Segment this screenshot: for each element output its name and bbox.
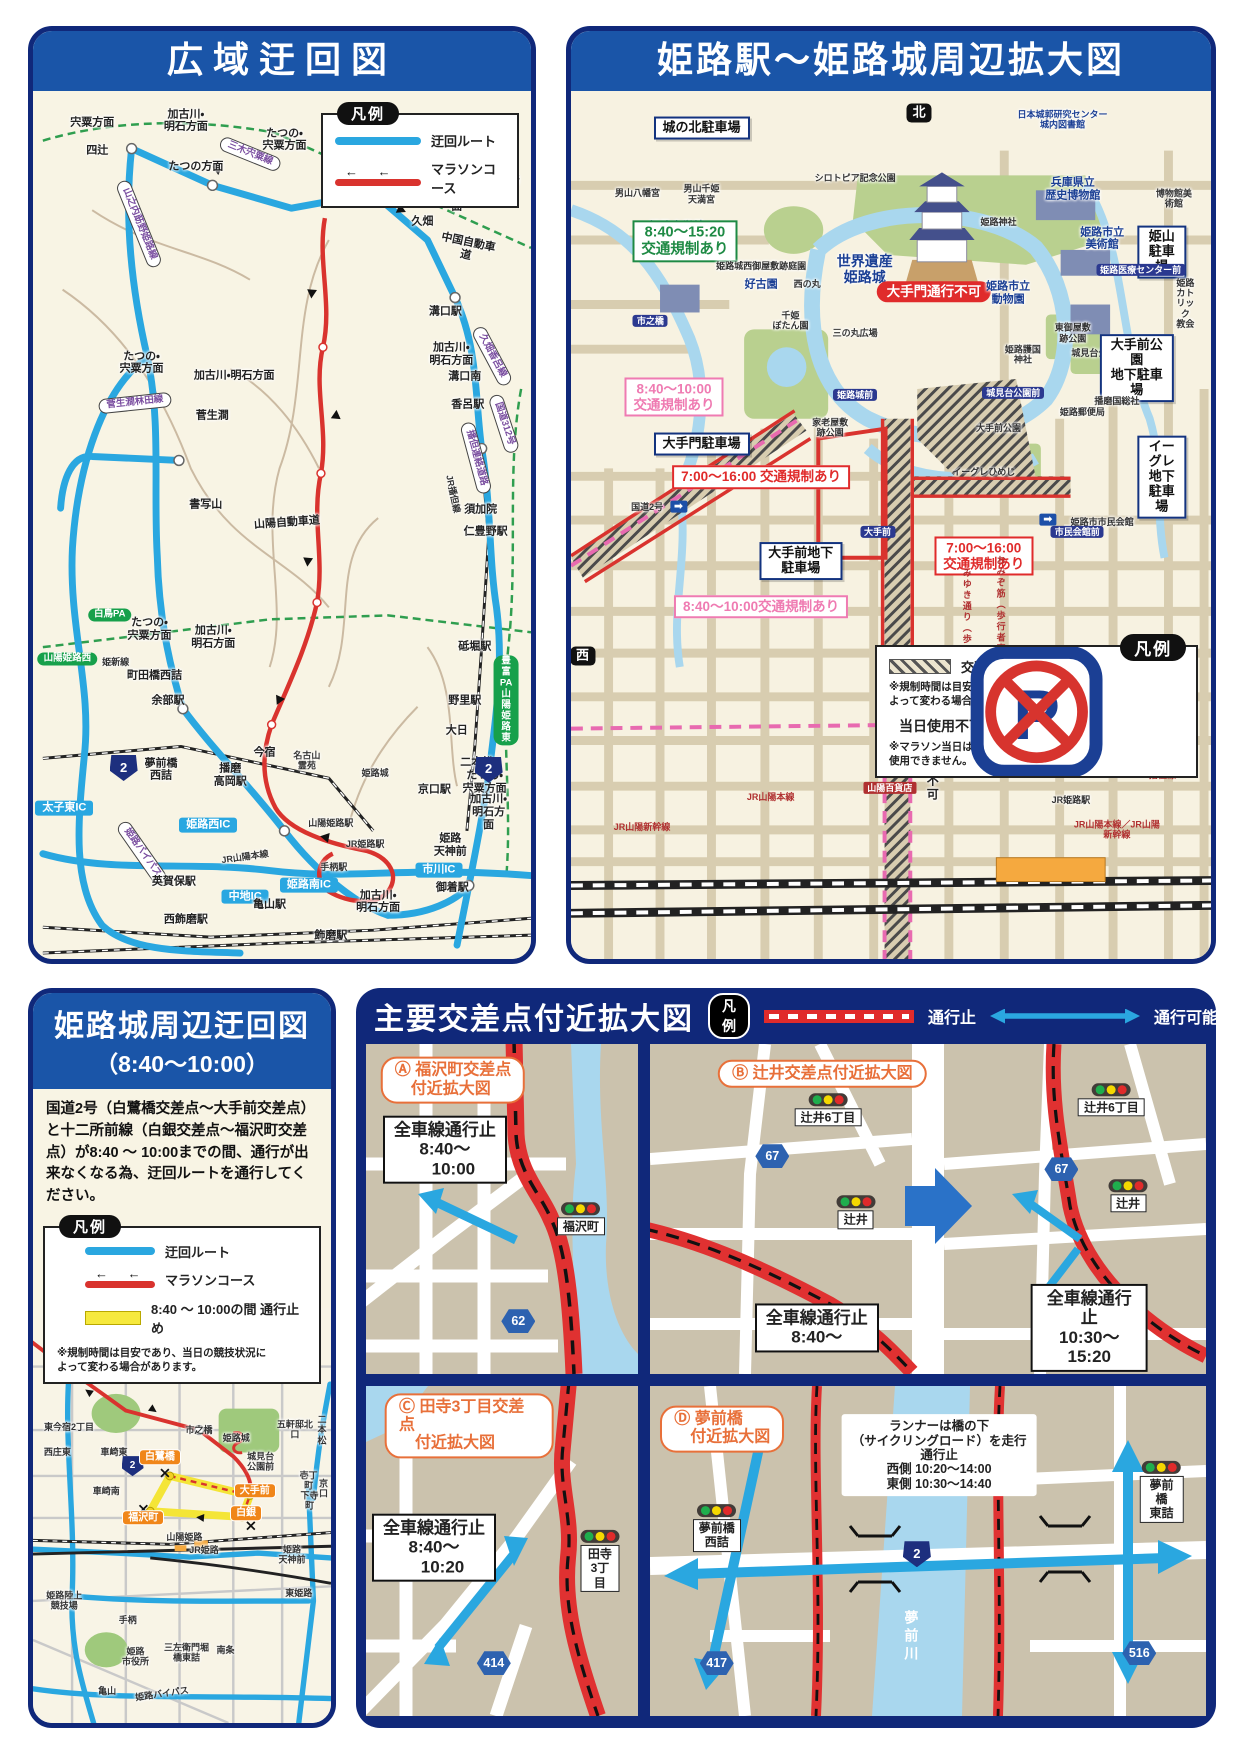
map-label: 手柄 [119,1615,137,1625]
map-label: 加古川・ 明石方面 [164,108,208,133]
one-way-arrow-icon: ➡ [1039,513,1056,526]
map-label: 城見台 公園前 [247,1451,274,1472]
parking-otemon-label: 大手門駐車場 [654,433,750,456]
traffic-signal-icon [697,1504,736,1517]
map-label: 姫路城 [223,1433,250,1443]
map-label: JR姫路駅 [1052,795,1091,805]
parking-otemae-underground-label: 大手前地下 駐車場 [759,543,842,581]
map-label: 須加院 [464,504,497,517]
tsujii-signal: 辻井 [836,1196,875,1229]
fukuzawacho-signal-text: 福沢町 [557,1217,605,1235]
map-label: JR山陽本線 [747,792,795,802]
station-castle-map: 北城の北駐車場P日本城郭研究センター 城内図書館シロトピア記念公園男山八幡宮男山… [571,91,1211,959]
castle-title-line2: （8:40～10:00） [33,1045,331,1079]
fukuzawacho-label: 福沢町 [122,1510,164,1526]
map-label: 加古川・明石方面 [194,369,275,382]
map-label: 姫路城前 [833,389,877,401]
tadera-3chome-signal-text: 田寺3丁目 [580,1545,619,1592]
regulation-840-1520-label: 8:40～15:20 交通規制あり [632,220,737,261]
intersections-grid: Ⓐ 福沢町交差点 付近拡大図全車線通行止 8:40～ 10:00福沢町62 [356,1044,1216,1728]
north-marker: 北 [907,103,932,122]
map-label: 加古川・ 明石方面 [467,793,509,831]
map-label: 豊富PA 山陽姫路東 [494,656,519,745]
map-label: 日本城郭研究センター 城内図書館 [1018,109,1108,130]
map-label: 播磨 高岡駅 [214,762,247,787]
map-label: 山陽百貨店 [863,782,916,794]
map-label: 手柄駅 [320,862,347,872]
subpanel-c-title: Ⓒ 田寺3丁目交差点 付近拡大図 [385,1393,554,1458]
map-label: 姫路護国 神社 [1005,345,1041,366]
wide-legend: 凡例 迂回ルート マラソンコース [321,113,519,208]
traffic-signal-icon [1092,1083,1131,1096]
castle-legend: 凡例 迂回ルート マラソンコース 8:40 ～ 10:00の間 通行止め ※規制… [43,1226,321,1384]
marathon-course-label: マラソンコース [431,159,505,197]
legend-title: 凡例 [59,1215,121,1238]
panel-intersections: 主要交差点付近拡大図 凡例 通行止 通行可能ルート [356,988,1216,1728]
traffic-signal-icon [1142,1461,1181,1474]
map-label: 五軒邸北口 [277,1420,313,1441]
panel-station-title: 姫路駅～姫路城周辺拡大図 [571,31,1211,91]
map-label: 御着駅 [436,881,469,894]
submap-b-tsujii: Ⓑ 辻井交差点付近拡大図辻井6丁目67辻井全車線通行止 8:40～辻井6丁目67… [650,1044,1206,1374]
tsujii-signal-text: 辻井 [838,1211,874,1229]
yumesaebashi-east-signal-text: 夢前橋 東詰 [1139,1476,1183,1523]
map-label: JR姫路 [189,1545,219,1555]
yumesaebashi-west-signal-text: 夢前橋 西詰 [693,1519,741,1552]
map-label: 東御屋敷 跡公園 [1055,323,1091,344]
legend-note: ※規制時間は目安であり、当日の競技状況に よって変わる場合があります。 [57,1346,307,1374]
yumesaebashi-west-signal: 夢前橋 西詰 [693,1504,741,1552]
map-label: 加古川・ 明石方面 [429,341,473,366]
map-label: 姫路市立 美術館 [1080,226,1124,251]
map-label: 姫路 市役所 [122,1646,149,1667]
traffic-signal-icon [580,1530,619,1543]
yumesae-river-label: 夢前川 [903,1610,919,1664]
shirasagibashi-label: 白鷺橋 [139,1450,181,1466]
map-label: 二本松 [318,1414,327,1445]
detour-route-label: 迂回ルート [165,1242,230,1261]
closure-time-label: 全車線通行止 10:30～15:20 [1031,1284,1148,1372]
map-label: 博物館美術館 [1155,188,1192,209]
wide-area-map: 宍粟方面加古川・ 明石方面四辻たつの方面三木宍粟線たつの・ 宍粟方面加古川・明石… [33,91,531,959]
map-label: 播磨国総社 [1094,396,1139,406]
regulation-700-1600-label: 7:00～16:00 交通規制あり [934,537,1033,576]
panel-castle-detour: 姫路城周辺迂回図 （8:40～10:00） 国道2号（白鷺橋交差点～大手前交差点… [28,988,336,1728]
shirogane-label: 白銀 [230,1505,262,1521]
map-label: たつの・ 宍粟方面 [262,127,306,152]
map-label: 宍粟方面 [70,117,114,130]
map-label: 亀山 [98,1685,116,1695]
subpanel-b-title: Ⓑ 辻井交差点付近拡大図 [718,1059,926,1087]
closure-label: 8:40 ～ 10:00の間 通行止め [151,1299,307,1337]
tsujii-signal-text: 辻井 [1110,1194,1146,1212]
map-label: 姫路市立 動物園 [986,281,1030,306]
map-label: 名古山 霊苑 [293,751,320,772]
tsujii-6chome-signal-text: 辻井6丁目 [795,1108,862,1126]
map-label: 男山八幡宮 [615,187,660,197]
panel-station-castle: 姫路駅～姫路城周辺拡大図 [566,26,1216,964]
traffic-signal-icon [836,1196,875,1209]
map-label: 姫路西IC [179,818,237,833]
marathon-course-label: マラソンコース [165,1270,255,1289]
tsujii-signal: 辻井 [1109,1179,1148,1212]
map-label: 姫路 カトリック 教会 [1173,278,1199,330]
map-label: 姫路郵便局 [1060,407,1105,417]
parking-castle-north-label: 城の北駐車場 [654,117,750,140]
castle-detour-description: 国道2号（白鷺橋交差点～大手前交差点）と十二所前線（白銀交差点～福沢町交差点）が… [33,1089,331,1212]
yumesaebashi-note: ランナーは橋の下 （サイクリングロード）を走行 通行止 西側 10:20～14:… [842,1414,1037,1496]
intersections-header: 主要交差点付近拡大図 凡例 通行止 通行可能ルート [356,988,1216,1044]
map-label: 町田橋西詰 [127,670,182,683]
castle-title-line1: 姫路城周辺迂回図 [33,1001,331,1045]
fukuzawacho-signal: 福沢町 [557,1202,605,1235]
map-label: 下寺町 [299,1490,320,1511]
map-label: たつの方面 [168,161,223,174]
map-label: 車崎東 [101,1447,128,1457]
map-label: JR山陽本線／JR山陽新幹線 [1070,819,1164,840]
traffic-signal-icon [561,1202,600,1215]
traffic-signal-icon [808,1093,847,1106]
map-label: 京口 [319,1478,328,1499]
map-label: 仁豊野駅 [464,526,508,539]
map-label: 姫路医療センター前 [1096,264,1185,276]
map-label: 砥堀駅 [458,641,491,654]
otemon-closed-label: 大手門通行不可 [877,281,992,303]
map-label: 大日 [446,724,468,737]
map-label: 溝口南 [448,370,481,383]
map-label: 姫路 天神前 [278,1545,305,1566]
map-label: 兵庫県立 歴史博物館 [1045,176,1100,201]
map-label: 大手前 [860,526,895,538]
map-label: 千姫 ぼたん園 [773,311,809,332]
map-label: 大手前公園 [976,423,1021,433]
map-label: 亀山駅 [253,899,286,912]
map-label: 南条 [216,1645,234,1655]
map-label: 山陽姫路 [166,1532,202,1542]
yumesaebashi-east-signal: 夢前橋 東詰 [1139,1461,1183,1523]
tsujii-6chome-signal-text: 辻井6丁目 [1078,1098,1145,1116]
map-label: 城見台公園前 [982,387,1044,399]
map-label: 東今宿2丁目 [44,1422,94,1432]
map-label: 西庄東 [44,1447,71,1457]
map-label: 野里駅 [448,695,481,708]
map-label: JR山陽新幹線 [614,822,671,832]
regulation-840-1000-label: 8:40～10:00交通規制あり [674,595,848,619]
tsujii-6chome-signal: 辻井6丁目 [795,1093,862,1126]
map-label: 京口駅 [418,783,451,796]
map-label: 市之橋 [633,315,668,327]
map-label: 溝口駅 [429,306,462,319]
map-label: 山陽姫路駅 [308,818,353,828]
panel-castle-title: 姫路城周辺迂回図 （8:40～10:00） [33,993,331,1089]
intersections-title: 主要交差点付近拡大図 [374,994,694,1038]
west-marker: 西 [571,647,595,666]
page: 広域迂回図 [0,0,1241,1754]
map-label: 姫路南IC [280,878,338,893]
map-label: 姫路神社 [981,217,1017,227]
map-label: 市川IC [415,863,462,878]
map-label: シロトピア記念公園 [815,173,896,183]
map-label: 男山千姫 天満宮 [684,184,720,205]
map-label: 加古川・ 明石方面 [191,624,235,649]
station-legend: 凡例 交通規制エリア ※規制時間は目安であり、当日の競技状況に よって変わる場合… [875,645,1198,779]
subpanel-d-title: Ⓓ 夢前橋 付近拡大図 [660,1406,784,1453]
map-label: 姫路城西御屋敷跡庭園 [716,261,806,271]
map-label: 三左衛門堀 橋東詰 [164,1643,209,1664]
closure-swatch [85,1311,141,1325]
marathon-course-swatch [335,168,421,188]
map-label: 夢前橋 西詰 [144,757,177,782]
parking-egret-label: イーグレ 地下駐車場 [1137,436,1186,519]
map-label: 西飾磨駅 [164,914,208,927]
map-label: 市之橋 [185,1425,212,1435]
map-label: 香呂駅 [451,399,484,412]
map-label: 姫路 天神前 [434,833,467,858]
map-label: 姫路城 [362,768,389,778]
detour-route-swatch [85,1247,155,1255]
map-label: 加古川・ 明石方面 [356,889,400,914]
map-label: 車崎南 [93,1485,120,1495]
otemae-label: 大手前 [234,1483,276,1499]
submap-d-yumesaebashi: Ⓓ 夢前橋 付近拡大図ランナーは橋の下 （サイクリングロード）を走行 通行止 西… [650,1386,1206,1716]
map-label: たつの・ 宍粟方面 [128,617,172,642]
map-label: イーグレひめじ [952,467,1015,477]
submap-a-fukuzawacho: Ⓐ 福沢町交差点 付近拡大図全車線通行止 8:40～ 10:00福沢町62 [366,1044,638,1374]
subpanel-a-title: Ⓐ 福沢町交差点 付近拡大図 [381,1057,525,1104]
one-way-arrow-icon: ➡ [670,500,687,513]
closed-route-label: 通行止 [928,1004,976,1028]
open-route-label: 通行可能ルート [1154,1004,1216,1028]
map-label: 書写山 [189,499,222,512]
map-label: 国道2号 [631,502,663,512]
tsujii-6chome-signal: 辻井6丁目 [1078,1083,1145,1116]
map-label: 山陽姫路西 [38,652,98,665]
detour-route-swatch [335,137,421,145]
map-label: 久畑 [411,216,433,229]
submap-c-tadera: Ⓒ 田寺3丁目交差点 付近拡大図全車線通行止 8:40～ 10:20田寺3丁目4… [366,1386,638,1716]
legend-title: 凡例 [708,993,750,1039]
map-label: 西の丸 [794,279,821,289]
map-label: 四辻 [86,145,108,158]
regulation-840-1000-label: 8:40～10:00 交通規制あり [625,378,724,417]
open-route-swatch [990,1009,1140,1024]
detour-route-label: 迂回ルート [431,131,496,150]
panel-wide-area-detour: 広域迂回図 [28,26,536,964]
map-label: 姫新線 [102,657,129,667]
traffic-signal-icon [1109,1179,1148,1192]
map-label: 英賀保駅 [152,875,196,888]
map-label: 余部駅 [151,695,184,708]
tadera-3chome-signal: 田寺3丁目 [580,1530,619,1592]
parking-otemae-park-label: 大手前公園 地下駐車場 [1100,334,1174,402]
regulation-700-1600-label: 7:00～16:00 交通規制あり [672,465,850,489]
closed-route-swatch [764,1010,914,1023]
map-label: 菅生澗 [196,409,229,422]
map-label: 三の丸広場 [833,328,878,338]
map-label: 白鳥PA [88,609,132,622]
map-label: 壱丁町 [297,1470,319,1491]
panel-wide-title: 広域迂回図 [33,31,531,91]
map-label: たつの・ 宍粟方面 [120,350,164,375]
map-label: 今宿 [254,747,276,760]
map-label: 飾磨駅 [314,929,347,942]
map-label: 姫路陸上 競技場 [46,1591,82,1612]
map-label: 市民会館前 [1051,526,1104,538]
legend-title: 凡例 [337,102,399,125]
marathon-course-swatch [85,1270,155,1290]
map-label: JR姫路駅 [346,839,385,849]
map-label: 家老屋敷 跡公園 [812,417,848,438]
map-label: 東姫路 [285,1588,312,1598]
closure-time-label: 全車線通行止 8:40～ 10:00 [383,1115,507,1184]
map-label: 好古園 [745,279,778,292]
map-label: 太子東IC [35,801,93,816]
closure-time-label: 全車線通行止 8:40～ 10:20 [372,1513,496,1582]
closure-time-label: 全車線通行止 8:40～ [755,1303,879,1352]
